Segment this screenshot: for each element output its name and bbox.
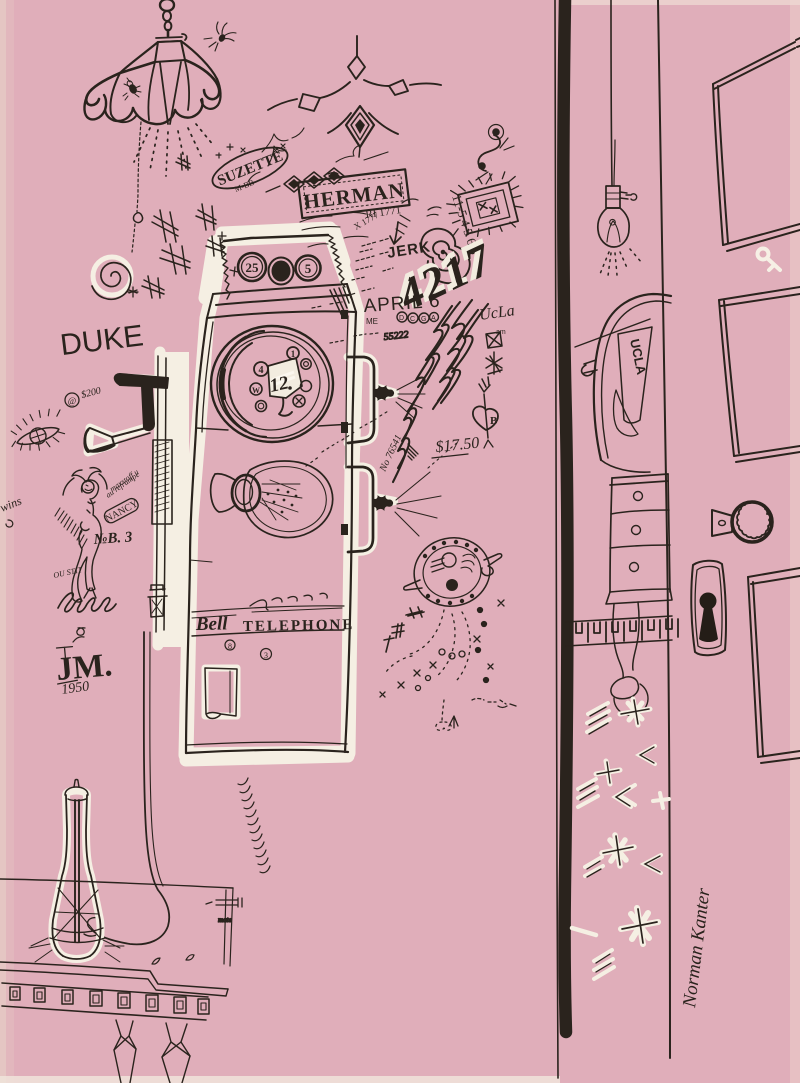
svg-text:C: C: [410, 316, 415, 323]
svg-text:25: 25: [246, 260, 260, 275]
svg-text:8: 8: [228, 642, 232, 651]
svg-text:1: 1: [278, 265, 284, 279]
svg-text:ME: ME: [366, 317, 378, 326]
svg-text:5: 5: [305, 261, 312, 276]
svg-text:B: B: [490, 415, 498, 427]
svg-text:G: G: [421, 316, 426, 323]
svg-text:mate: mate: [218, 916, 232, 924]
svg-text:4: 4: [259, 365, 264, 376]
svg-text:1: 1: [291, 349, 296, 359]
svg-text:3: 3: [264, 651, 268, 660]
svg-text:W: W: [252, 386, 260, 395]
svg-text:A: A: [431, 315, 436, 322]
svg-text:D: D: [399, 315, 404, 322]
svg-text:@: @: [68, 396, 76, 406]
svg-text:№B. 3: №B. 3: [92, 529, 133, 548]
